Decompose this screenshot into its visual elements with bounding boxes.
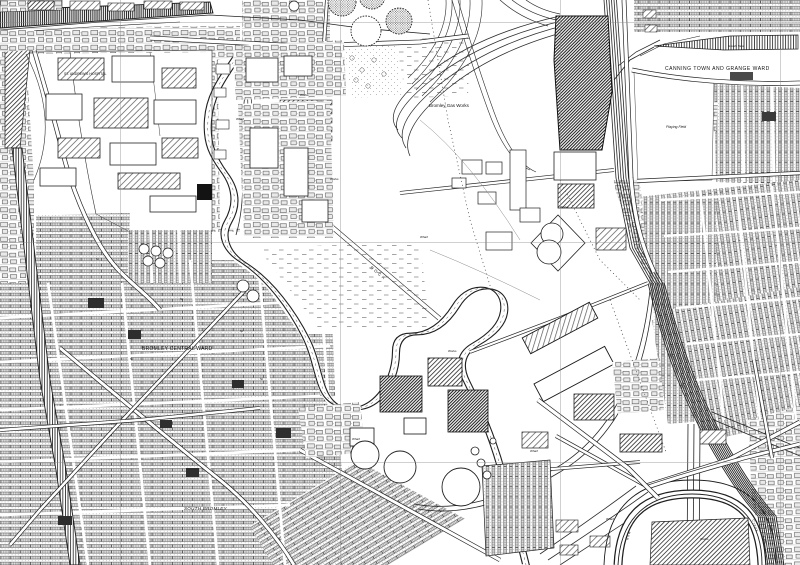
- svg-text:St: St: [260, 377, 263, 381]
- svg-text:Bromley Gas Works: Bromley Gas Works: [429, 103, 470, 108]
- svg-text:St: St: [180, 297, 183, 301]
- svg-text:Wharf: Wharf: [352, 437, 360, 441]
- svg-text:Works: Works: [700, 537, 709, 541]
- svg-text:Goods Yard: Goods Yard: [728, 44, 744, 48]
- svg-text:Works: Works: [300, 93, 309, 97]
- svg-text:Wharf: Wharf: [606, 517, 614, 521]
- svg-text:CANNING TOWN AND GRANGE WARD: CANNING TOWN AND GRANGE WARD: [665, 66, 770, 72]
- svg-text:Playing Field: Playing Field: [666, 125, 687, 129]
- svg-text:BROMLEY CENTRAL WARD: BROMLEY CENTRAL WARD: [142, 346, 213, 352]
- svg-text:St: St: [240, 329, 243, 333]
- svg-text:Works: Works: [448, 349, 457, 353]
- svg-text:SOUTH BROMLEY: SOUTH BROMLEY: [184, 506, 228, 511]
- svg-text:St: St: [96, 257, 99, 261]
- svg-text:ST. ANDREW'S HOSPITAL: ST. ANDREW'S HOSPITAL: [64, 72, 106, 76]
- svg-text:Works: Works: [560, 205, 569, 209]
- svg-text:St: St: [130, 357, 133, 361]
- svg-text:Works: Works: [330, 177, 339, 181]
- svg-text:Wharf: Wharf: [530, 449, 538, 453]
- svg-text:Wharf: Wharf: [420, 235, 428, 239]
- svg-text:Wharf: Wharf: [236, 117, 244, 121]
